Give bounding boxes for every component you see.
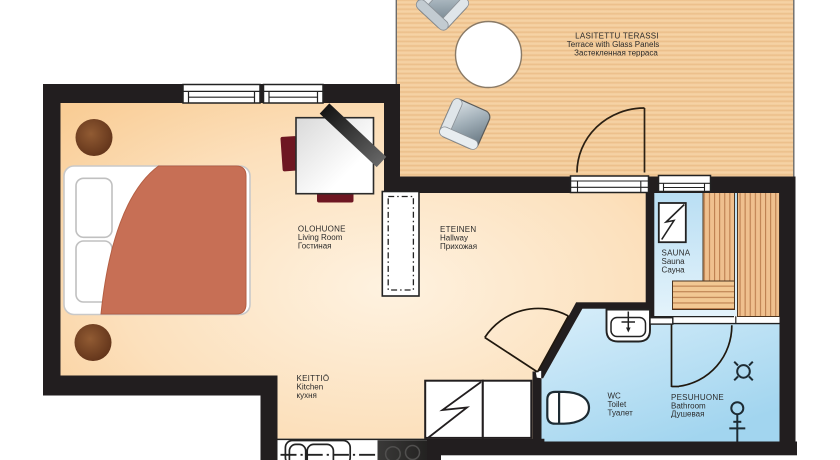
svg-text:Застекленная терраса: Застекленная терраса (574, 49, 658, 58)
svg-text:Гостиная: Гостиная (298, 241, 332, 250)
svg-text:Прихожая: Прихожая (440, 242, 477, 251)
svg-text:Душевая: Душевая (671, 410, 704, 419)
svg-text:Сауна: Сауна (662, 266, 686, 275)
svg-text:кухня: кухня (297, 391, 317, 400)
svg-text:Туалет: Туалет (608, 409, 634, 418)
